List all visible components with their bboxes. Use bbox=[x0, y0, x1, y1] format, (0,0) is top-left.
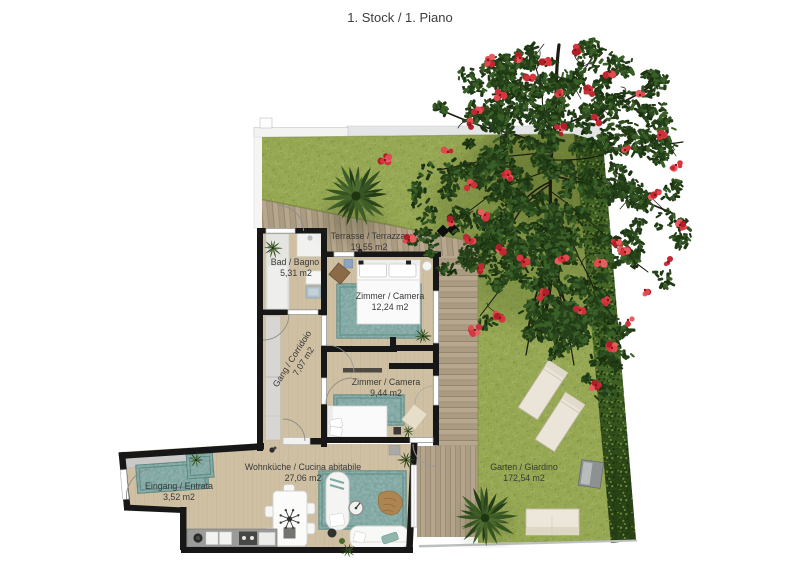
svg-text:3,52 m2: 3,52 m2 bbox=[163, 492, 195, 502]
svg-text:Zimmer / Camera: Zimmer / Camera bbox=[356, 291, 425, 301]
svg-text:5,31 m2: 5,31 m2 bbox=[280, 268, 312, 278]
svg-text:Garten / Giardino: Garten / Giardino bbox=[490, 462, 558, 472]
svg-text:Zimmer / Camera: Zimmer / Camera bbox=[352, 377, 421, 387]
svg-text:Eingang / Entrata: Eingang / Entrata bbox=[145, 481, 213, 491]
svg-text:1. Stock / 1. Piano: 1. Stock / 1. Piano bbox=[347, 10, 453, 25]
svg-text:19,55 m2: 19,55 m2 bbox=[351, 242, 388, 252]
svg-text:9,44 m2: 9,44 m2 bbox=[370, 388, 402, 398]
svg-text:Wohnküche / Cucina abitabile: Wohnküche / Cucina abitabile bbox=[245, 462, 361, 472]
svg-text:Bad / Bagno: Bad / Bagno bbox=[271, 257, 320, 267]
svg-text:172,54 m2: 172,54 m2 bbox=[503, 473, 545, 483]
svg-text:27,06 m2: 27,06 m2 bbox=[285, 473, 322, 483]
svg-text:12,24 m2: 12,24 m2 bbox=[372, 302, 409, 312]
